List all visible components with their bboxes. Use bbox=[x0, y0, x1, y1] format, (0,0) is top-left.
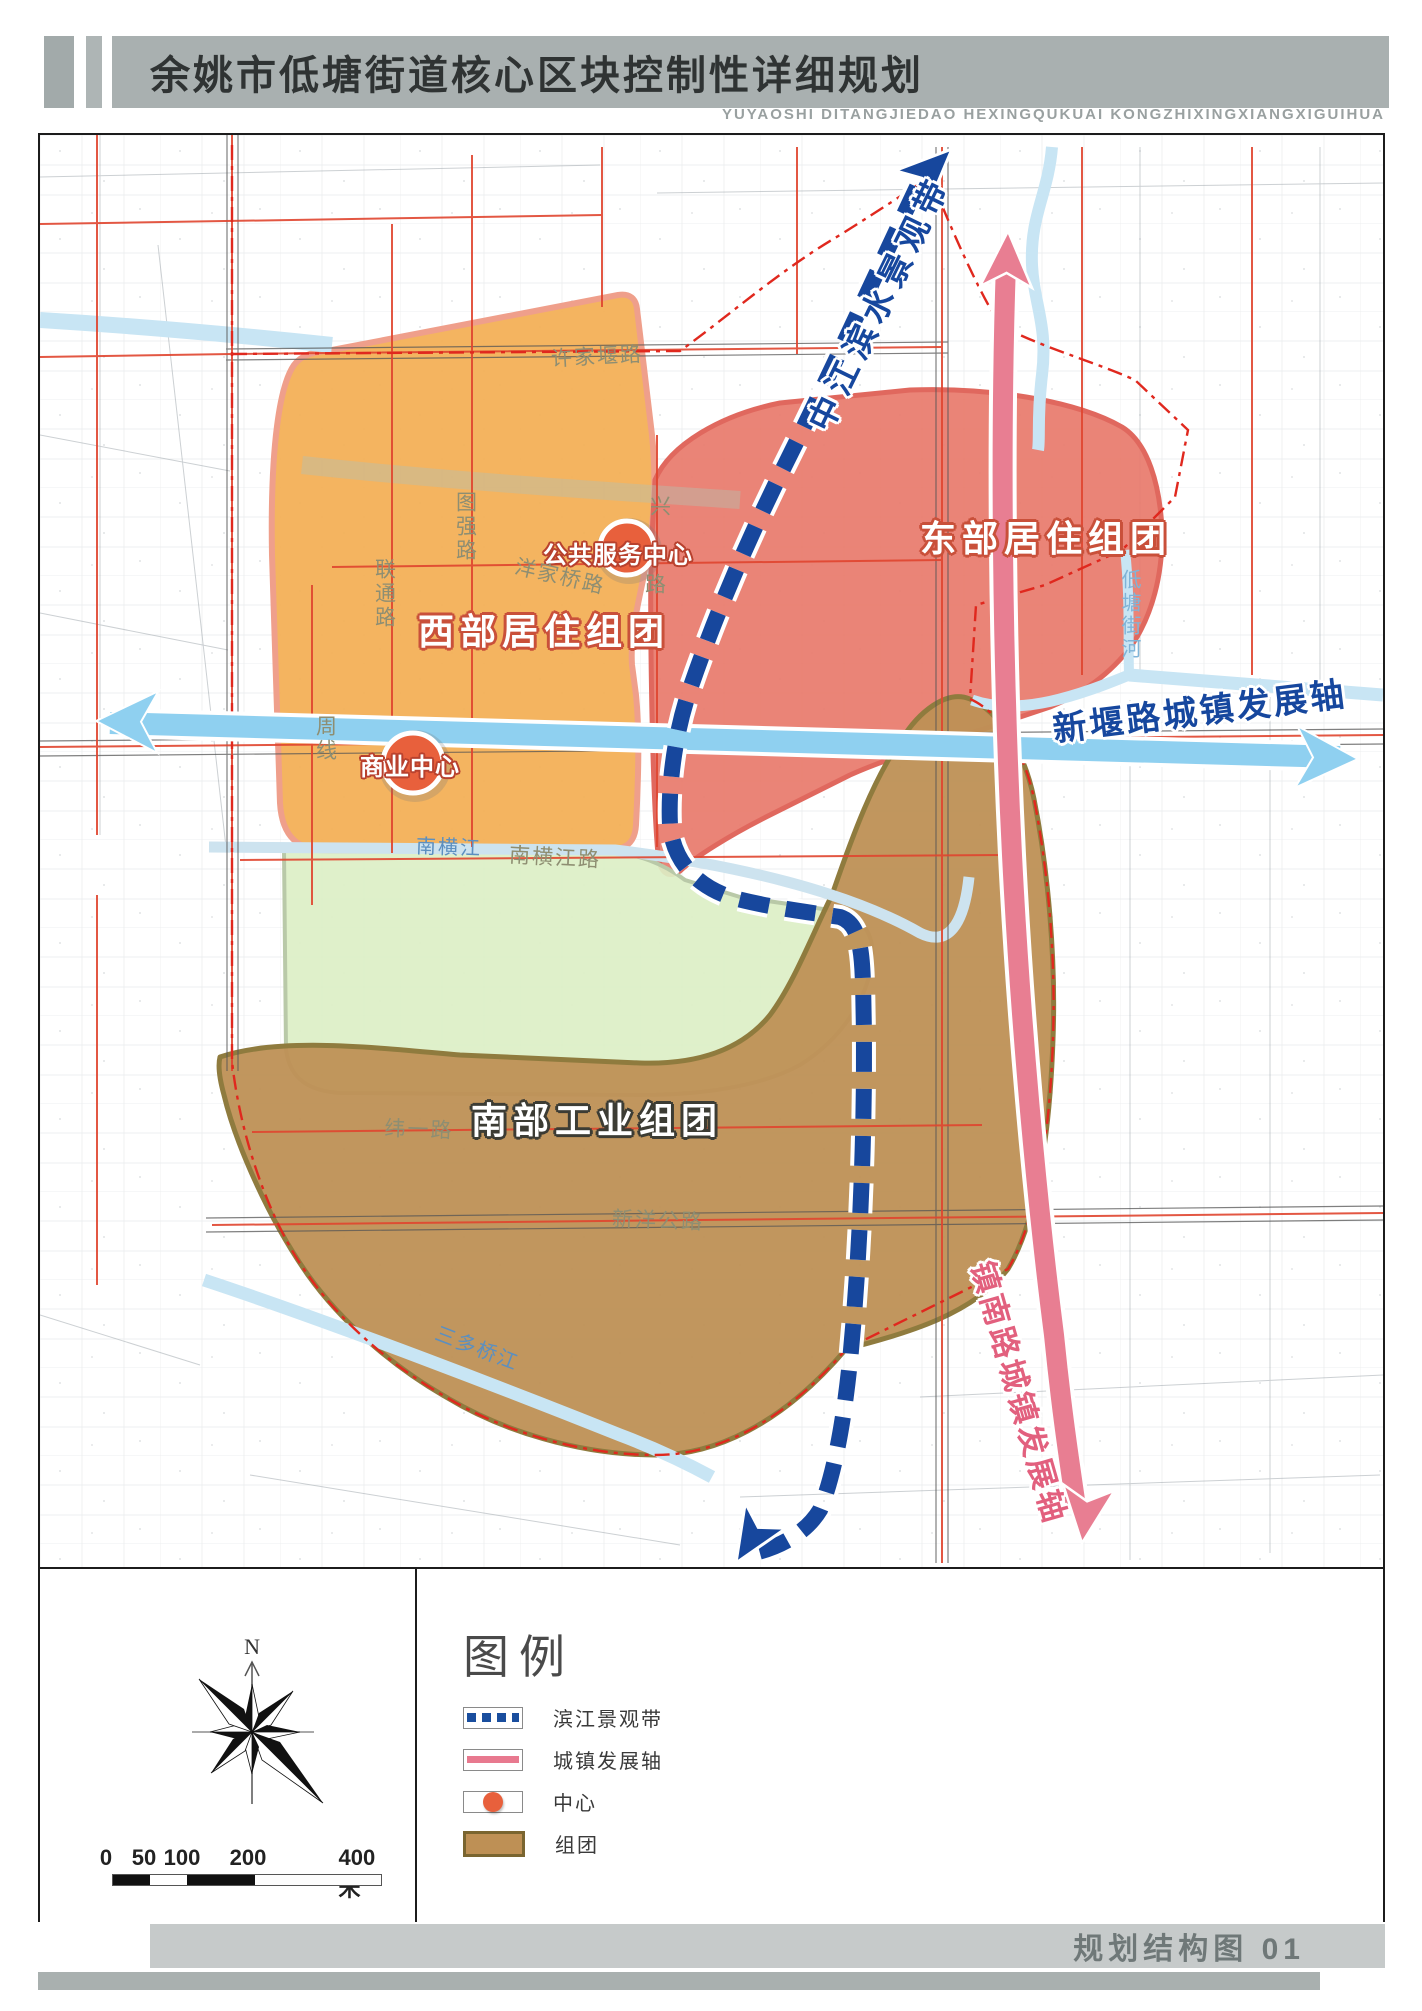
road-label-zhouxian: 周线 bbox=[313, 715, 336, 763]
road-label-xinyang-highway: 新洋公路 bbox=[612, 1208, 705, 1234]
legend-item-label: 城镇发展轴 bbox=[553, 1745, 663, 1774]
figure-caption: 规划结构图 01 bbox=[1073, 1924, 1385, 1968]
scale-bar bbox=[112, 1874, 382, 1886]
river-label-ditangjie: 低塘街河 bbox=[1118, 569, 1140, 661]
road-label-xujiayan: 许家堰路 bbox=[550, 343, 643, 371]
compass-north-label: N bbox=[244, 1634, 260, 1659]
center-label-public-service: 公共服务中心 bbox=[543, 543, 693, 569]
road-label-nanhengjiang-road: 南横江路 bbox=[508, 844, 601, 872]
center-label-commercial: 商业中心 bbox=[360, 755, 460, 781]
header-accent-bar-thin bbox=[86, 36, 102, 108]
zone-label-east: 东部居住组团 bbox=[920, 519, 1172, 559]
legend-title: 图例 bbox=[463, 1621, 1383, 1687]
legend-item-label: 中心 bbox=[553, 1787, 597, 1816]
road-label-lu-fragment: 路 bbox=[642, 573, 665, 597]
legend-item-label: 滨江景观带 bbox=[553, 1703, 663, 1732]
scale-tick-0: 0 bbox=[100, 1845, 112, 1871]
river-label-nanhengjiang: 南横江 bbox=[416, 836, 483, 860]
scale-segment bbox=[113, 1875, 150, 1885]
footer-accent-bar bbox=[38, 1972, 1320, 1990]
page-subtitle-pinyin: YUYAOSHI DITANGJIEDAO HEXINGQUKUAI KONGZ… bbox=[0, 106, 1385, 123]
footer-band: 规划结构图 01 bbox=[150, 1924, 1385, 1968]
compass-rose: N bbox=[40, 1569, 417, 1829]
scale-tick-200: 200 bbox=[230, 1845, 267, 1871]
legend-item-center: 中心 bbox=[463, 1787, 1383, 1816]
legend-symbol-center-dot bbox=[463, 1791, 523, 1813]
compass-scale-panel: N 0 50 100 200 400米 bbox=[40, 1569, 417, 1922]
zone-label-south: 南部工业组团 bbox=[471, 1101, 723, 1141]
header-accent-bar bbox=[44, 36, 74, 108]
legend-symbol-brown-fill bbox=[463, 1831, 525, 1857]
planning-map-canvas bbox=[40, 135, 1383, 1567]
legend-strip: N 0 50 100 200 400米 图例 滨江景观带 bbox=[40, 1567, 1383, 1922]
legend-item-waterfront: 滨江景观带 bbox=[463, 1703, 1383, 1732]
scale-segment bbox=[150, 1875, 187, 1885]
map-frame: 西部居住组团 东部居住组团 南部工业组团 中江滨水景观带 新堰路城镇发展轴 镇南… bbox=[38, 133, 1385, 1922]
road-label-xing-fragment: 兴 bbox=[647, 495, 670, 519]
scale-tick-50: 50 bbox=[132, 1845, 156, 1871]
planning-map: 西部居住组团 东部居住组团 南部工业组团 中江滨水景观带 新堰路城镇发展轴 镇南… bbox=[40, 135, 1383, 1567]
scale-tick-100: 100 bbox=[164, 1845, 201, 1871]
legend-panel: 图例 滨江景观带 城镇发展轴 中心 组团 bbox=[419, 1569, 1383, 1922]
legend-item-label: 组团 bbox=[555, 1829, 599, 1858]
legend-symbol-pink-line bbox=[463, 1749, 523, 1771]
header-band: 余姚市低塘街道核心区块控制性详细规划 bbox=[112, 36, 1389, 108]
zone-label-west: 西部居住组团 bbox=[418, 612, 670, 652]
road-label-weiyi: 纬一路 bbox=[384, 1117, 454, 1142]
road-label-tuqiang: 图强路 bbox=[453, 491, 476, 563]
legend-item-axis: 城镇发展轴 bbox=[463, 1745, 1383, 1774]
legend-symbol-blue-dashed bbox=[463, 1707, 523, 1729]
road-label-liantong: 联通路 bbox=[372, 558, 395, 630]
scale-segment bbox=[187, 1875, 255, 1885]
page-title: 余姚市低塘街道核心区块控制性详细规划 bbox=[112, 43, 924, 101]
scale-segment bbox=[255, 1875, 381, 1885]
legend-item-group: 组团 bbox=[463, 1829, 1383, 1858]
